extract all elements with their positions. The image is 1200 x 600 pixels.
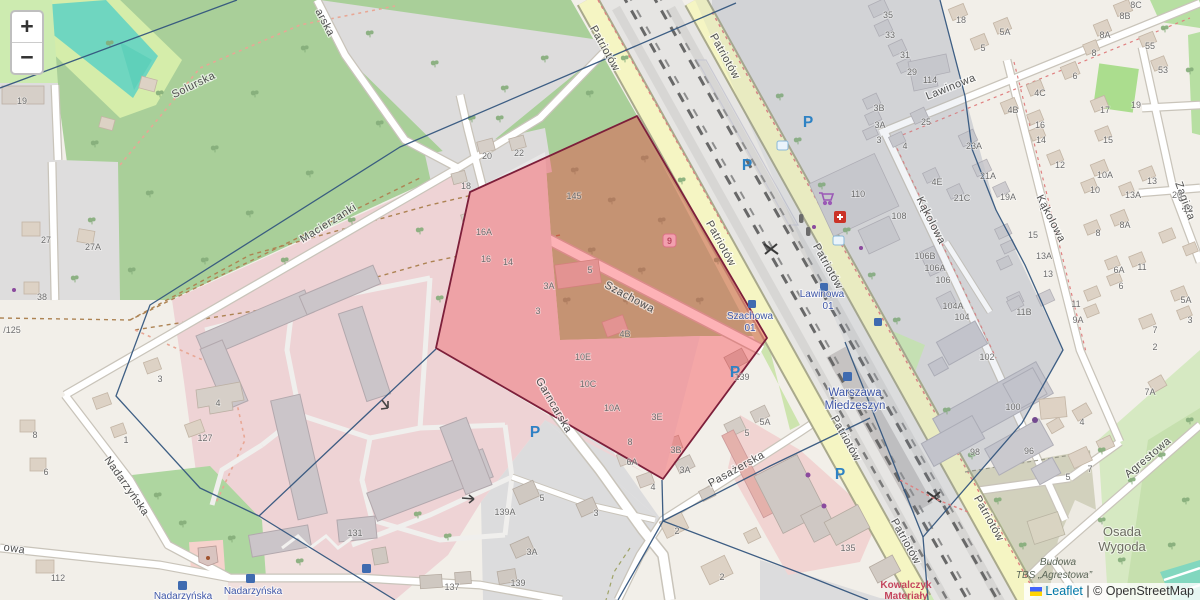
svg-text:13: 13 [1043, 269, 1053, 279]
svg-text:3: 3 [535, 306, 540, 316]
svg-text:15: 15 [1028, 230, 1038, 240]
svg-text:3: 3 [876, 135, 881, 145]
svg-text:104: 104 [954, 312, 969, 322]
svg-text:2: 2 [1152, 342, 1157, 352]
svg-text:Osada: Osada [1103, 524, 1142, 539]
svg-text:19A: 19A [1000, 192, 1016, 202]
svg-text:38: 38 [37, 292, 47, 302]
svg-text:16A: 16A [476, 227, 492, 237]
svg-text:8: 8 [627, 437, 632, 447]
svg-text:5A: 5A [759, 417, 770, 427]
svg-text:Kowalczyk: Kowalczyk [880, 580, 932, 591]
svg-text:53: 53 [1158, 65, 1168, 75]
svg-text:13A: 13A [1125, 190, 1141, 200]
svg-text:131: 131 [347, 528, 362, 538]
svg-text:12: 12 [1055, 160, 1065, 170]
svg-text:11B: 11B [1016, 307, 1031, 317]
svg-text:Nadarzyńska: Nadarzyńska [224, 586, 283, 597]
svg-text:7A: 7A [1144, 387, 1155, 397]
svg-text:139: 139 [734, 372, 749, 382]
svg-text:6A: 6A [1113, 265, 1124, 275]
svg-text:8C: 8C [1130, 0, 1142, 10]
svg-text:8: 8 [1091, 48, 1096, 58]
svg-text:5: 5 [1065, 472, 1070, 482]
svg-text:33: 33 [885, 30, 895, 40]
svg-text:14: 14 [1036, 135, 1046, 145]
svg-text:100: 100 [1005, 402, 1020, 412]
svg-text:2: 2 [719, 572, 724, 582]
svg-text:11: 11 [1071, 299, 1080, 309]
svg-text:21A: 21A [980, 171, 996, 181]
svg-text:19: 19 [1131, 100, 1141, 110]
svg-text:01: 01 [744, 323, 756, 334]
svg-text:31: 31 [900, 50, 910, 60]
svg-text:145: 145 [566, 191, 581, 201]
svg-text:19: 19 [17, 96, 27, 106]
svg-text:3B: 3B [670, 445, 681, 455]
svg-text:P: P [530, 424, 540, 441]
svg-text:Wygoda: Wygoda [1098, 539, 1146, 554]
svg-text:4: 4 [215, 398, 220, 408]
svg-text:Warszawa: Warszawa [828, 387, 882, 399]
svg-text:13A: 13A [1036, 251, 1052, 261]
svg-text:11: 11 [1137, 262, 1146, 272]
svg-text:108: 108 [891, 211, 906, 221]
svg-text:4C: 4C [1034, 88, 1046, 98]
svg-text:23A: 23A [966, 141, 982, 151]
svg-text:5: 5 [539, 493, 544, 503]
svg-text:4: 4 [650, 482, 655, 492]
svg-text:10A: 10A [1097, 170, 1113, 180]
svg-text:P: P [835, 466, 845, 483]
svg-text:3: 3 [157, 374, 162, 384]
svg-text:110: 110 [851, 189, 865, 199]
svg-text:Budowa: Budowa [1040, 557, 1077, 568]
svg-text:10C: 10C [580, 379, 597, 389]
svg-text:18: 18 [956, 15, 966, 25]
svg-text:7: 7 [1152, 325, 1157, 335]
svg-text:106A: 106A [924, 263, 945, 273]
svg-text:9A: 9A [1072, 315, 1083, 325]
svg-text:18: 18 [461, 181, 471, 191]
svg-text:106B: 106B [914, 251, 935, 261]
svg-text:139: 139 [510, 578, 525, 588]
svg-text:3: 3 [1187, 315, 1192, 325]
svg-text:Miedzeszyn: Miedzeszyn [825, 400, 886, 412]
svg-text:135: 135 [840, 543, 855, 553]
svg-text:16: 16 [1035, 120, 1045, 130]
svg-text:Szachowa: Szachowa [727, 311, 774, 322]
svg-text:127: 127 [197, 433, 212, 443]
svg-text:5A: 5A [999, 27, 1010, 37]
svg-text:6: 6 [1072, 71, 1077, 81]
svg-text:17: 17 [1100, 105, 1110, 115]
svg-text:20: 20 [1172, 190, 1182, 200]
svg-text:15: 15 [1103, 135, 1113, 145]
svg-text:5: 5 [744, 428, 749, 438]
svg-text:P: P [742, 157, 752, 174]
svg-text:4E: 4E [931, 177, 942, 187]
svg-text:137: 137 [444, 582, 459, 592]
svg-text:20: 20 [482, 151, 492, 161]
svg-text:102: 102 [979, 352, 994, 362]
svg-text:8: 8 [1095, 228, 1100, 238]
svg-text:13: 13 [1147, 176, 1157, 186]
svg-text:4: 4 [902, 141, 907, 151]
svg-text:10: 10 [1090, 185, 1100, 195]
svg-text:21C: 21C [954, 193, 971, 203]
svg-text:22: 22 [514, 148, 524, 158]
svg-text:P: P [803, 114, 813, 131]
svg-text:7: 7 [1087, 464, 1092, 474]
svg-text:114: 114 [923, 75, 937, 85]
svg-text:12: 12 [1183, 204, 1193, 214]
svg-text:98: 98 [970, 447, 980, 457]
svg-text:3A: 3A [679, 465, 690, 475]
svg-text:6A: 6A [626, 457, 637, 467]
svg-text:3E: 3E [651, 412, 662, 422]
svg-text:25: 25 [921, 117, 931, 127]
svg-text:4B: 4B [1007, 105, 1018, 115]
svg-text:3: 3 [593, 508, 598, 518]
svg-text:3A: 3A [543, 281, 554, 291]
svg-text:10E: 10E [575, 352, 591, 362]
svg-text:27A: 27A [85, 242, 101, 252]
svg-text:8A: 8A [1099, 30, 1110, 40]
svg-text:96: 96 [1024, 446, 1034, 456]
svg-text:9: 9 [667, 236, 672, 246]
svg-text:Nadarzyńska: Nadarzyńska [154, 591, 213, 600]
svg-text:14: 14 [503, 257, 513, 267]
svg-text:8B: 8B [1119, 11, 1130, 21]
svg-text:3A: 3A [526, 547, 537, 557]
svg-text:2: 2 [674, 526, 679, 536]
svg-text:35: 35 [883, 10, 893, 20]
svg-text:8A: 8A [1119, 220, 1130, 230]
svg-text:112: 112 [51, 573, 65, 583]
svg-text:4: 4 [1079, 417, 1084, 427]
svg-text:5A: 5A [1180, 295, 1191, 305]
svg-text:6: 6 [1118, 281, 1123, 291]
svg-text:3A: 3A [874, 120, 885, 130]
svg-text:TBS „Agrestowa”: TBS „Agrestowa” [1016, 570, 1093, 581]
svg-text:5: 5 [587, 265, 592, 275]
svg-text:106: 106 [935, 275, 950, 285]
svg-text:3B: 3B [873, 103, 884, 113]
svg-text:10A: 10A [604, 403, 620, 413]
svg-text:139A: 139A [494, 507, 515, 517]
svg-text:4B: 4B [619, 329, 630, 339]
svg-text:/125: /125 [3, 325, 21, 335]
svg-text:29: 29 [907, 67, 917, 77]
svg-text:5: 5 [980, 43, 985, 53]
svg-text:8: 8 [32, 430, 37, 440]
svg-text:6: 6 [43, 467, 48, 477]
svg-text:104A: 104A [942, 301, 963, 311]
svg-text:01: 01 [822, 301, 834, 312]
svg-text:27: 27 [41, 235, 51, 245]
svg-text:Lawinowa: Lawinowa [800, 289, 845, 300]
svg-text:16: 16 [481, 254, 491, 264]
svg-text:1: 1 [123, 435, 128, 445]
svg-text:55: 55 [1145, 41, 1155, 51]
svg-text:Materiały: Materiały [884, 591, 928, 600]
